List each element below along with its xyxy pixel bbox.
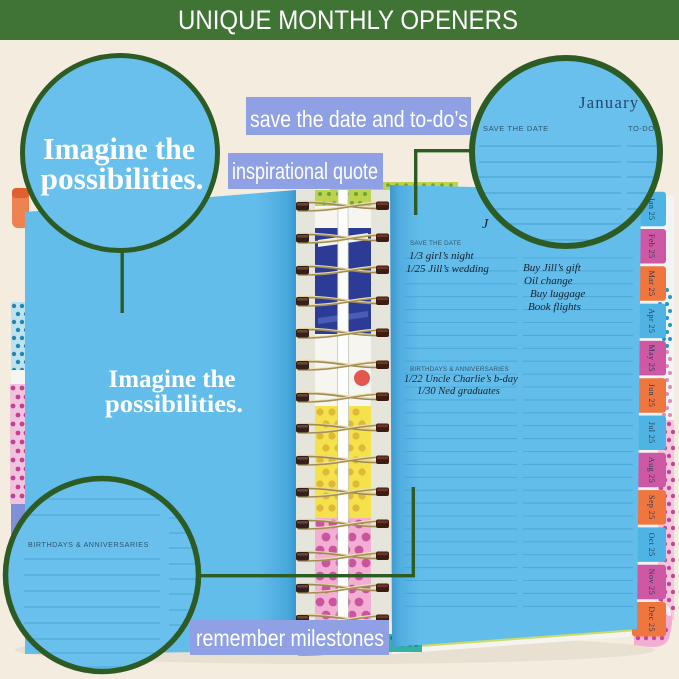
svg-text:May 25: May 25 (647, 345, 656, 372)
svg-text:inspirational quote: inspirational quote (232, 158, 378, 184)
svg-text:UNIQUE MONTHLY OPENERS: UNIQUE MONTHLY OPENERS (178, 5, 518, 35)
svg-text:Buy Jill’s gift: Buy Jill’s gift (523, 262, 582, 274)
svg-text:Jun 25: Jun 25 (647, 384, 656, 408)
svg-text:Apr 25: Apr 25 (647, 308, 656, 333)
svg-text:BIRTHDAYS & ANNIVERSARIES: BIRTHDAYS & ANNIVERSARIES (28, 540, 149, 549)
svg-text:BIRTHDAYS & ANNIVERSARIES: BIRTHDAYS & ANNIVERSARIES (410, 366, 509, 373)
svg-text:Imagine the: Imagine the (43, 132, 195, 166)
svg-text:Oil change: Oil change (524, 275, 573, 287)
svg-text:Sep 25: Sep 25 (647, 495, 656, 519)
svg-text:1/25 Jill’s wedding: 1/25 Jill’s wedding (406, 263, 489, 275)
svg-text:Dec 25: Dec 25 (647, 607, 656, 632)
svg-text:Mar 25: Mar 25 (647, 271, 656, 297)
svg-text:J: J (482, 217, 489, 232)
svg-text:1/30 Ned graduates: 1/30 Ned graduates (417, 386, 500, 397)
svg-text:1/22 Uncle Charlie’s b-day: 1/22 Uncle Charlie’s b-day (404, 374, 518, 385)
svg-text:Oct 25: Oct 25 (647, 533, 656, 557)
svg-text:Nov 25: Nov 25 (647, 569, 656, 595)
svg-text:Imagine the: Imagine the (109, 366, 236, 393)
svg-text:SAVE THE DATE: SAVE THE DATE (410, 240, 461, 247)
svg-text:possibilities.: possibilities. (41, 162, 204, 196)
svg-text:Book flights: Book flights (528, 301, 581, 313)
svg-text:remember milestones: remember milestones (196, 625, 384, 651)
svg-text:Jul 25: Jul 25 (647, 422, 656, 444)
svg-text:1/3 girl’s night: 1/3 girl’s night (409, 250, 475, 262)
svg-text:possibilities.: possibilities. (105, 391, 243, 418)
svg-text:save the date and to-do’s: save the date and to-do’s (250, 106, 468, 132)
svg-text:Aug 25: Aug 25 (647, 457, 656, 483)
svg-text:SAVE THE DATE: SAVE THE DATE (483, 124, 549, 133)
svg-text:Feb 25: Feb 25 (647, 234, 656, 258)
svg-text:Buy luggage: Buy luggage (530, 288, 585, 300)
svg-text:TO-DO: TO-DO (628, 124, 655, 133)
